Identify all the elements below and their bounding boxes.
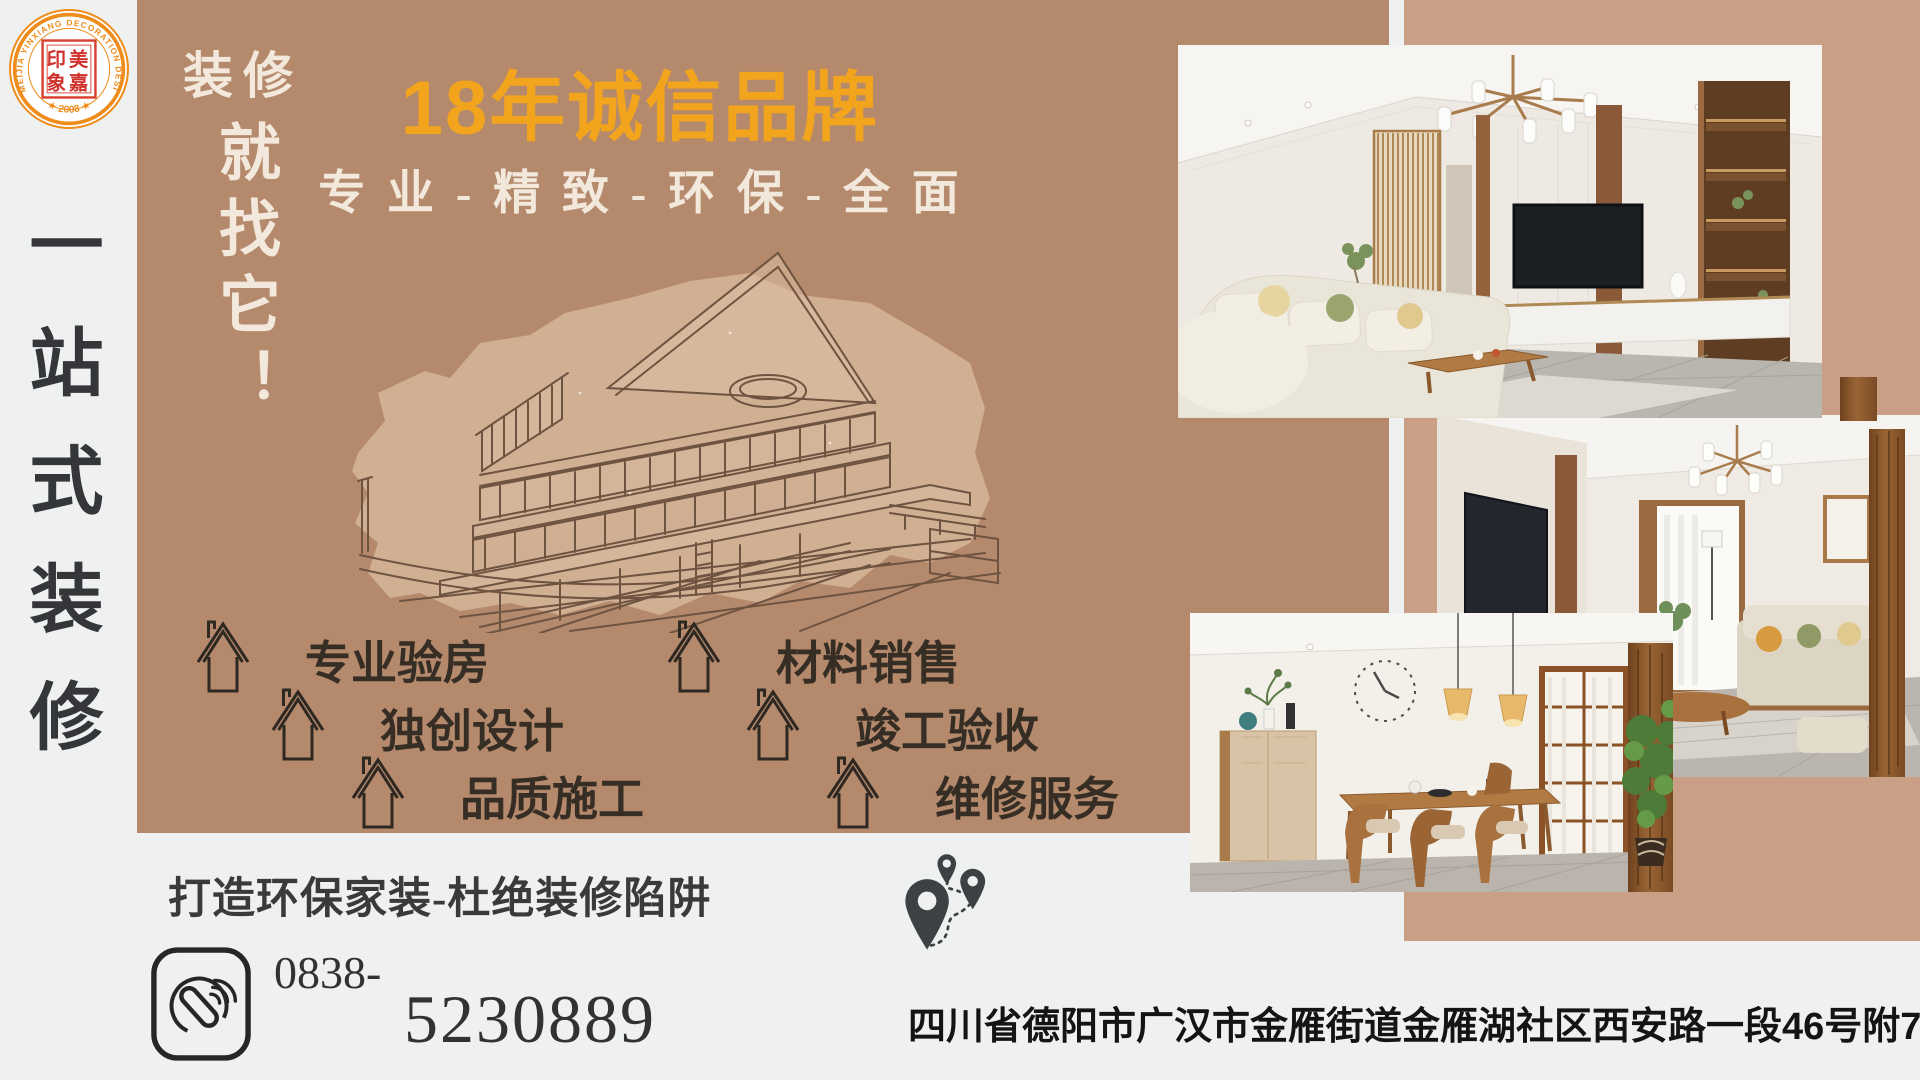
address-text: 四川省德阳市广汉市金雁街道金雁湖社区西安路一段46号附7号 xyxy=(908,995,1920,1050)
eco-slogan: 打造环保家装-杜绝装修陷阱 xyxy=(168,864,711,926)
service-item-construction: 品质施工 xyxy=(352,751,644,829)
headline-subtitle: 专 业 - 精 致 - 环 保 - 全 面 xyxy=(300,154,980,223)
phone-number: 5230889 xyxy=(404,980,656,1059)
seal-characters-row2: 象嘉 xyxy=(47,71,92,94)
photo-living-room-1 xyxy=(1178,45,1822,418)
house-icon xyxy=(668,615,720,693)
house-icon xyxy=(197,615,249,693)
vertical-slogan: 就找它！ xyxy=(206,120,280,424)
company-seal-logo: MEIJIA YINXIANG DECORATION DESIGN CO.,LT… xyxy=(8,8,130,130)
service-item-repair: 维修服务 xyxy=(827,751,1119,829)
building-sketch-illustration xyxy=(330,243,1015,633)
photo-dining-room xyxy=(1190,613,1673,892)
phone-icon xyxy=(150,944,252,1064)
service-item-materials: 材料销售 xyxy=(668,615,960,693)
building-sketch xyxy=(330,243,1015,633)
house-icon xyxy=(272,683,324,761)
side-banner-one-stop: 一站式装修 xyxy=(16,206,102,796)
wood-column-sliver xyxy=(1840,377,1877,421)
service-label: 维修服务 xyxy=(935,777,1119,829)
kicker-text: 装修 xyxy=(183,36,303,108)
headline-title: 18年诚信品牌 xyxy=(300,46,980,156)
location-pins-icon xyxy=(896,846,1010,960)
phone-prefix: 0838- xyxy=(274,946,381,999)
house-icon xyxy=(827,751,879,829)
seal-characters-row1: 印美 xyxy=(47,48,92,71)
service-item-acceptance: 竣工验收 xyxy=(747,683,1039,761)
house-icon xyxy=(352,751,404,829)
house-icon xyxy=(747,683,799,761)
service-label: 品质施工 xyxy=(460,777,644,829)
seal-logo-icon: MEIJIA YINXIANG DECORATION DESIGN CO.,LT… xyxy=(8,8,130,130)
service-item-design: 独创设计 xyxy=(272,683,564,761)
poster-canvas: MEIJIA YINXIANG DECORATION DESIGN CO.,LT… xyxy=(0,0,1920,1080)
service-item-inspection: 专业验房 xyxy=(197,615,489,693)
